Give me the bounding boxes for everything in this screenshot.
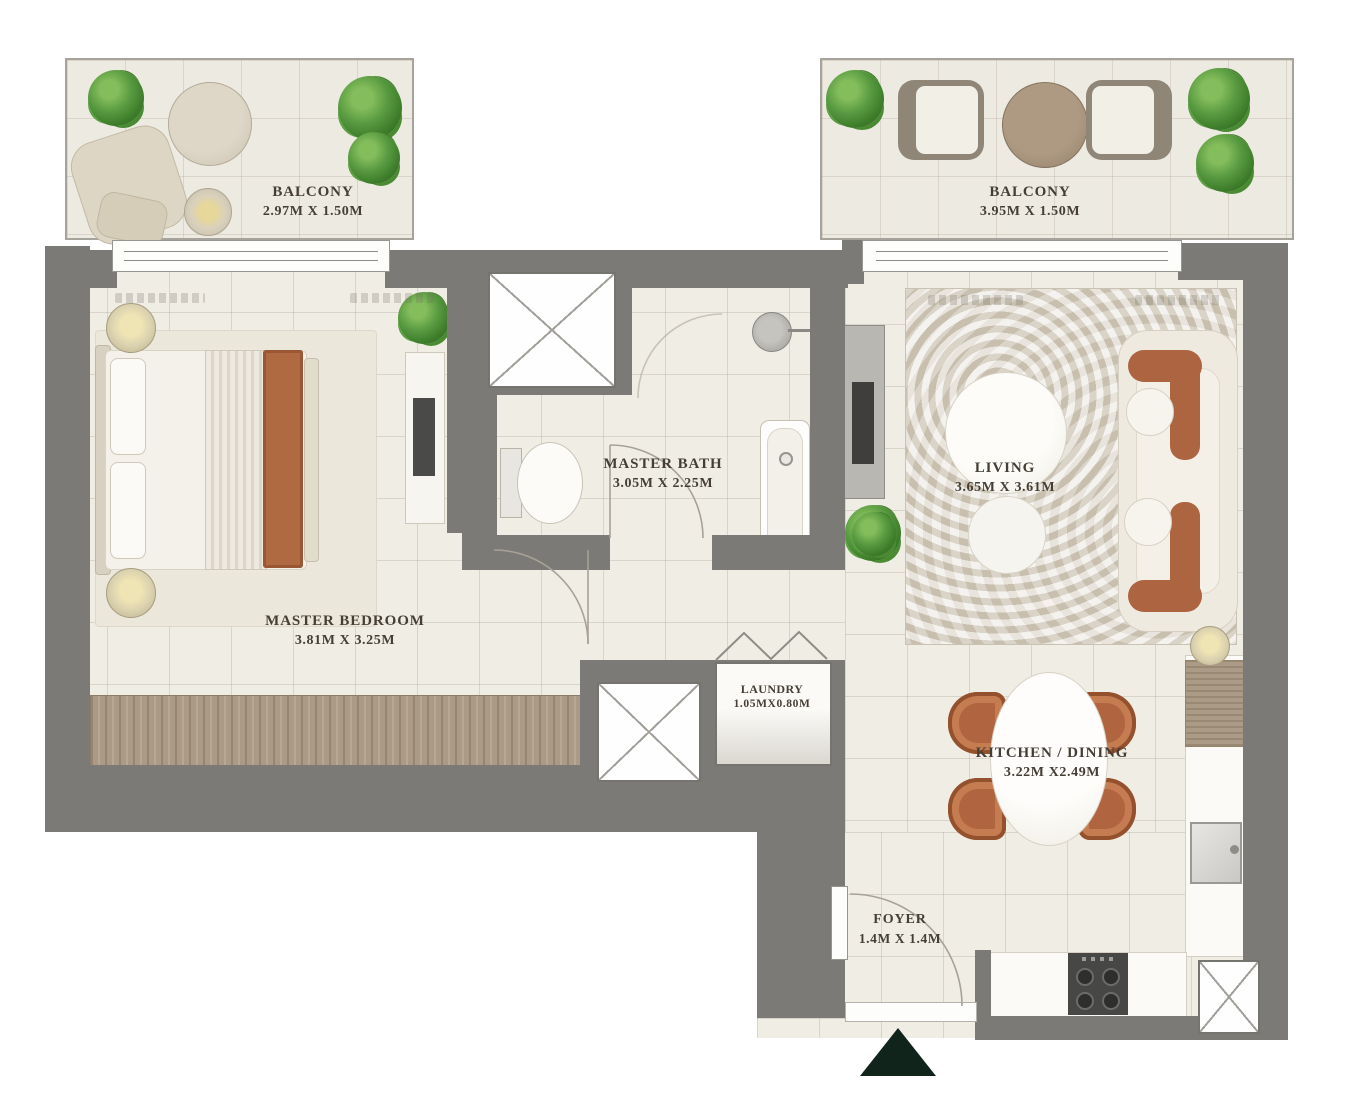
room-label-balcony-right: BALCONY 3.95M X 1.50M [920,184,1140,220]
room-label-foyer: FOYER 1.4M X 1.4M [830,912,970,947]
room-dims: 3.65M X 3.61M [895,480,1115,496]
room-name: KITCHEN / DINING [932,745,1172,762]
room-name: FOYER [830,912,970,928]
room-label-laundry: LAUNDRY 1.05MX0.80M [712,682,832,710]
room-label-master-bath: MASTER BATH 3.05M X 2.25M [553,456,773,492]
bifold-door-laundry [716,632,827,660]
room-dims: 3.95M X 1.50M [920,204,1140,220]
room-dims: 3.22M X2.49M [932,765,1172,781]
door-swing-overlay [0,0,1346,1100]
room-name: BALCONY [203,184,423,201]
room-dims: 1.4M X 1.4M [830,931,970,947]
door-arc-bedroom [494,550,588,644]
room-name: MASTER BEDROOM [225,613,465,630]
room-dims: 2.97M X 1.50M [203,204,423,220]
room-label-balcony-left: BALCONY 2.97M X 1.50M [203,184,423,220]
door-arc-foyer [850,894,962,1006]
room-name: BALCONY [920,184,1140,201]
room-label-living: LIVING 3.65M X 3.61M [895,460,1115,496]
room-label-master-bedroom: MASTER BEDROOM 3.81M X 3.25M [225,613,465,649]
room-name: MASTER BATH [553,456,773,473]
room-dims: 3.05M X 2.25M [553,476,773,492]
entrance-arrow [860,1028,936,1076]
floor-plan: BALCONY 2.97M X 1.50M BALCONY 3.95M X 1.… [0,0,1346,1100]
room-name: LAUNDRY [712,682,832,697]
room-name: LIVING [895,460,1115,477]
room-dims: 1.05MX0.80M [712,698,832,710]
room-dims: 3.81M X 3.25M [225,633,465,649]
room-label-kitchen-dining: KITCHEN / DINING 3.22M X2.49M [932,745,1172,781]
door-arc-shower [638,314,722,398]
